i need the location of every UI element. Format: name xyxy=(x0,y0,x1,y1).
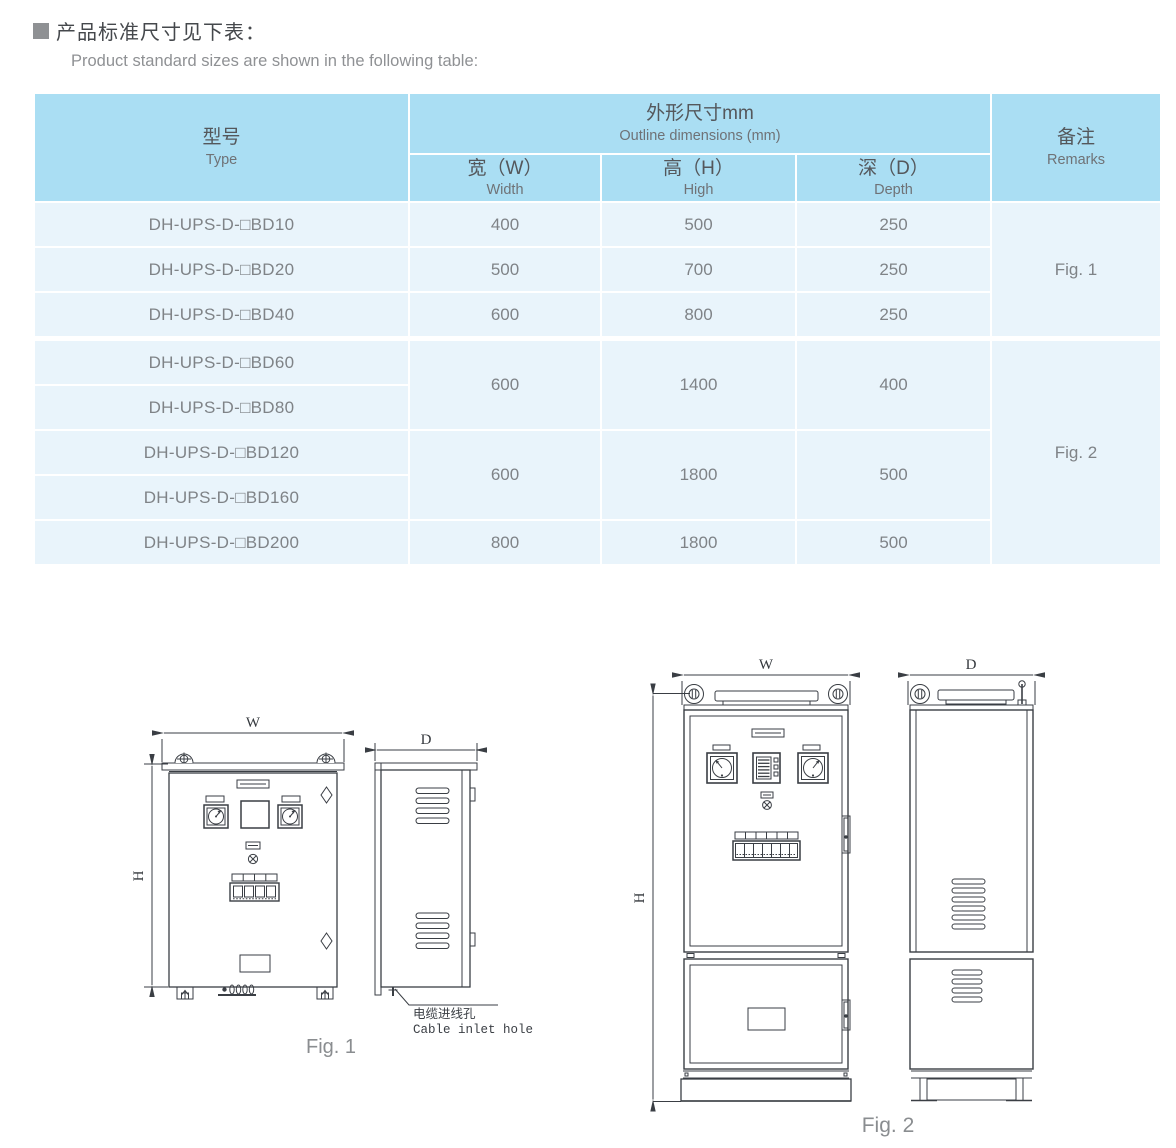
col-header-depth: 深（D） Depth xyxy=(796,154,991,202)
fig1-caption: Fig. 1 xyxy=(121,1036,541,1059)
depth-cell-bd120-160: 500 xyxy=(796,430,991,520)
high-cell-bd40: 800 xyxy=(601,292,796,339)
title-cn-row: 产品标准尺寸见下表： xyxy=(33,16,478,45)
high-cell-bd60-80: 1400 xyxy=(601,339,796,431)
fig2-drawing: W H xyxy=(628,648,1088,1123)
table-row: DH-UPS-D-□BD10 400 500 250 Fig. 1 xyxy=(34,202,1161,247)
fig1-dimension-d: D xyxy=(375,732,477,761)
col-header-type: 型号 Type xyxy=(34,93,409,202)
fig1-cable-label-cn: 电缆进线孔 xyxy=(413,1007,476,1021)
section-title: 产品标准尺寸见下表： Product standard sizes are sh… xyxy=(33,16,478,71)
type-cell-bd160: DH-UPS-D-□BD160 xyxy=(34,475,409,520)
fig2-door-handle-upper xyxy=(842,816,850,853)
width-cell-bd10: 400 xyxy=(409,202,601,247)
fig1-dimension-w: W xyxy=(162,715,344,762)
fig2-dimension-w: W xyxy=(682,657,850,705)
type-cell-bd200: DH-UPS-D-□BD200 xyxy=(34,520,409,565)
page-title-cn: 产品标准尺寸见下表： xyxy=(56,16,266,45)
fig1-cable-label-en: Cable inlet hole xyxy=(413,1023,533,1037)
fig1-side-view: 电缆进线孔 Cable inlet hole xyxy=(375,763,533,1037)
type-cell-bd60: DH-UPS-D-□BD60 xyxy=(34,339,409,386)
fig1-cable-inlet: 电缆进线孔 Cable inlet hole xyxy=(389,987,534,1037)
type-cell-bd80: DH-UPS-D-□BD80 xyxy=(34,385,409,430)
section-bullet-icon xyxy=(33,23,49,39)
fig2-caption: Fig. 2 xyxy=(628,1114,1148,1138)
col-header-type-cn: 型号 xyxy=(35,125,408,151)
fig1-door-lock-top-icon xyxy=(321,787,332,803)
fig2-side-louvers-upper xyxy=(952,879,985,929)
type-cell-bd20: DH-UPS-D-□BD20 xyxy=(34,247,409,292)
fig2-dim-h-label: H xyxy=(632,892,648,903)
high-cell-bd20: 700 xyxy=(601,247,796,292)
fig1-louvers-lower xyxy=(416,913,449,949)
high-cell-bd120-160: 1800 xyxy=(601,430,796,520)
col-header-outline: 外形尺寸mm Outline dimensions (mm) xyxy=(409,93,991,154)
high-cell-bd10: 500 xyxy=(601,202,796,247)
col-header-outline-cn: 外形尺寸mm xyxy=(410,101,990,127)
fig1-drawing: W H xyxy=(130,693,550,1038)
depth-cell-bd10: 250 xyxy=(796,202,991,247)
size-table: 型号 Type 外形尺寸mm Outline dimensions (mm) 备… xyxy=(33,92,1162,566)
page-title-en: Product standard sizes are shown in the … xyxy=(71,52,478,71)
width-cell-bd60-80: 600 xyxy=(409,339,601,431)
width-cell-bd120-160: 600 xyxy=(409,430,601,520)
col-header-width: 宽（W） Width xyxy=(409,154,601,202)
col-header-high: 高（H） High xyxy=(601,154,796,202)
fig2-side-eyebolt-icon xyxy=(911,685,930,704)
fig2-dim-d-label: D xyxy=(966,657,977,673)
fig2-controller xyxy=(753,753,780,783)
page: 产品标准尺寸见下表： Product standard sizes are sh… xyxy=(0,0,1176,1148)
fig1-dimension-h: H xyxy=(131,764,168,987)
fig2-dim-w-label: W xyxy=(759,657,774,673)
fig2-front-view xyxy=(681,685,851,1102)
type-cell-bd120: DH-UPS-D-□BD120 xyxy=(34,430,409,475)
fig1-dim-w-label: W xyxy=(246,715,261,731)
width-cell-bd20: 500 xyxy=(409,247,601,292)
fig1-dim-d-label: D xyxy=(421,732,432,748)
fig2-terminal-block xyxy=(733,832,800,860)
depth-cell-bd200: 500 xyxy=(796,520,991,565)
fig2-door-handle-lower xyxy=(842,1000,850,1030)
fig2-dimension-d: D xyxy=(908,657,1035,705)
type-cell-bd40: DH-UPS-D-□BD40 xyxy=(34,292,409,339)
fig2-side-louvers-lower xyxy=(952,970,982,1002)
high-cell-bd200: 1800 xyxy=(601,520,796,565)
col-header-remarks-cn: 备注 xyxy=(992,125,1160,151)
fig2-side-view xyxy=(910,681,1033,1101)
fig2-dimension-h: H xyxy=(632,694,690,1102)
depth-cell-bd20: 250 xyxy=(796,247,991,292)
depth-cell-bd60-80: 400 xyxy=(796,339,991,431)
col-header-remarks-en: Remarks xyxy=(992,151,1160,170)
fig1-door-lock-bottom-icon xyxy=(321,933,332,949)
col-header-outline-en: Outline dimensions (mm) xyxy=(410,127,990,146)
width-cell-bd200: 800 xyxy=(409,520,601,565)
remark-cell-fig2: Fig. 2 xyxy=(991,339,1161,566)
fig1-louvers-upper xyxy=(416,788,449,824)
type-cell-bd10: DH-UPS-D-□BD10 xyxy=(34,202,409,247)
table-row: DH-UPS-D-□BD60 600 1400 400 Fig. 2 xyxy=(34,339,1161,386)
col-header-remarks: 备注 Remarks xyxy=(991,93,1161,202)
depth-cell-bd40: 250 xyxy=(796,292,991,339)
fig2-eyebolt-right-icon xyxy=(829,685,848,704)
fig1-front-view xyxy=(162,753,344,1000)
fig1-dim-h-label: H xyxy=(131,870,147,881)
remark-cell-fig1: Fig. 1 xyxy=(991,202,1161,339)
col-header-type-en: Type xyxy=(35,151,408,170)
width-cell-bd40: 600 xyxy=(409,292,601,339)
